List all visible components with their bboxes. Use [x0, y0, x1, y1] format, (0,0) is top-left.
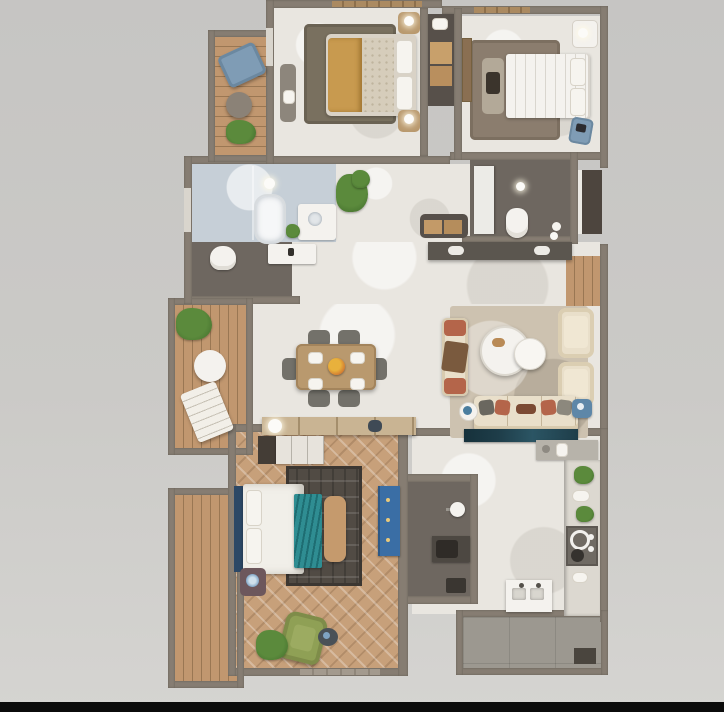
living-hex-table-decor: [577, 403, 584, 410]
dining-chair-bottom-2: [338, 390, 360, 407]
wall-balcony-left-bottom: [168, 448, 253, 455]
window-bedroom1-west: [266, 28, 273, 66]
kitchen-jar: [542, 445, 550, 453]
balcony-tl-plant: [226, 120, 256, 144]
bedroom2-lamp: [578, 28, 588, 38]
bedroom1-bed-duvet: [362, 38, 394, 112]
bedroom2-pillow-top: [570, 58, 586, 86]
wall-bedroom1-east: [420, 8, 428, 156]
bedroom2-wardrobe: [462, 38, 472, 102]
wall-bedroom2-east: [600, 6, 608, 168]
window-master-south: [300, 669, 380, 675]
master-teal-throw: [294, 494, 322, 568]
wall-wc-east: [470, 474, 478, 604]
balcony-left-plant: [176, 308, 212, 340]
bathroom2-shower-panel: [474, 166, 494, 234]
living-sofa-pillow-orange-2: [540, 399, 556, 415]
master-pillow-top: [246, 490, 262, 526]
hall-console-basin-2: [534, 246, 550, 255]
balcony-tl-table: [226, 92, 252, 118]
living-armchair-1-cushion: [564, 316, 588, 348]
living-sofa-lumbar-pillow: [516, 404, 536, 414]
master-wardrobe-white: [276, 436, 324, 464]
living-settee-throw: [441, 340, 469, 373]
bedroom1-pillow-right: [396, 76, 413, 110]
kitchen-sink-basin-1: [512, 588, 526, 600]
kitchen-kettle: [556, 443, 568, 457]
bathroom1-toilet: [210, 246, 236, 270]
bedroom1-closet-box: [432, 18, 448, 30]
wall-kitchen-east: [600, 428, 608, 622]
kitchen-stove-knob-2: [588, 546, 594, 552]
living-side-table-decor: [463, 406, 472, 415]
wall-balcony-tl-bottom: [208, 155, 274, 162]
living-sofa-pillow-gray-2: [556, 399, 573, 416]
master-nightstand-decor: [246, 574, 259, 587]
wall-bedroom1-west: [266, 0, 274, 164]
wall-deck-bl-bottom: [168, 681, 244, 688]
wc-wall-sink: [450, 502, 465, 517]
window-bathroom1-west: [184, 188, 191, 232]
service-balcony-mat: [574, 648, 596, 664]
bedroom2-pillow-bottom: [570, 88, 586, 116]
bedroom2-bench-throw: [486, 72, 500, 94]
bathroom1-bathtub: [254, 194, 286, 244]
balcony-left-table: [194, 350, 226, 382]
wall-balcony-left-top: [168, 298, 253, 305]
bathroom2-ceiling-light: [516, 182, 525, 191]
exterior-shaft: [582, 170, 602, 234]
wall-bedroom2-south: [450, 152, 608, 160]
kitchen-faucet-2: [536, 583, 541, 588]
living-settee-cushion-top: [444, 320, 466, 336]
dining-plate-3: [308, 378, 323, 390]
living-sofa-pillow-orange-1: [494, 399, 510, 415]
dining-chair-bottom-1: [308, 390, 330, 407]
wc-dark-basin: [436, 540, 458, 558]
kitchen-stove-knob-1: [588, 534, 594, 540]
entry-wood-floor: [566, 256, 600, 306]
wc-floor-mat: [446, 578, 466, 593]
bedroom1-lamp-bottom: [404, 114, 414, 124]
living-coffee-table-tray: [492, 338, 505, 347]
kitchen-burner: [570, 530, 590, 550]
hall-plant-leaf: [352, 170, 370, 188]
master-dresser-handle-1: [386, 498, 390, 502]
wall-wc-north: [398, 474, 478, 482]
bedroom1-desk-paper: [283, 90, 295, 104]
letterbox-bottom: [0, 702, 724, 712]
floor-plan-canvas: [0, 0, 724, 712]
kitchen-faucet-1: [519, 583, 524, 588]
master-plant: [256, 630, 288, 660]
bathroom1-ceiling-light: [264, 178, 275, 189]
bathroom2-toilet: [506, 208, 528, 238]
bedroom1-bed-mustard-blanket: [328, 38, 362, 112]
master-pillow-bottom: [246, 528, 262, 564]
wall-service-east: [601, 610, 608, 675]
bathroom1-plant: [286, 224, 300, 238]
wall-living-east: [600, 244, 608, 436]
kitchen-bowl-1: [572, 490, 590, 502]
wall-service-south: [456, 668, 608, 675]
dining-plate-4: [350, 378, 365, 390]
dining-sideboard: [262, 417, 416, 435]
bathroom1-sink: [308, 212, 322, 226]
living-armchair-2-cushion: [564, 369, 588, 397]
bathroom2-decor-vase: [552, 222, 561, 231]
hall-sideboard-drawer-1: [424, 220, 442, 234]
wall-balcony-tl-west: [208, 30, 215, 162]
living-sofa-pillow-gray-1: [478, 399, 495, 416]
master-dresser-handle-3: [386, 538, 390, 542]
kitchen-plant-1: [574, 466, 594, 484]
wall-wc-south: [398, 596, 478, 604]
dining-fruit-bowl: [328, 358, 345, 375]
kitchen-sink-basin-2: [530, 588, 544, 600]
wall-balcony-left-east: [246, 298, 253, 455]
wall-deck-bl-west: [168, 488, 175, 688]
master-bed-headboard: [234, 486, 243, 572]
dining-plate-2: [350, 352, 365, 364]
dining-sideboard-decor: [368, 420, 382, 432]
kitchen-pan: [571, 549, 584, 562]
kitchen-bowl-2: [572, 572, 588, 583]
dining-sideboard-lamp: [268, 419, 282, 433]
window-bedroom2-north: [474, 7, 530, 13]
dining-plate-1: [308, 352, 323, 364]
hall-sideboard-drawer-2: [444, 220, 462, 234]
bedroom1-closet-shelf-2: [430, 66, 452, 86]
living-settee-cushion-bottom: [444, 378, 466, 394]
wall-service-west: [456, 610, 463, 675]
living-coffee-table-small: [514, 338, 546, 370]
master-foot-bench: [324, 496, 346, 562]
bedroom1-lamp-top: [404, 16, 414, 26]
wall-bath2-east: [570, 152, 578, 244]
hall-cat-figurine: [550, 232, 558, 240]
wall-balcony-left-west: [168, 298, 175, 455]
master-wardrobe-dark: [258, 436, 276, 464]
kitchen-plant-2: [576, 506, 594, 522]
bedroom2-armchair-item: [575, 123, 586, 133]
window-bedroom1-north: [332, 1, 422, 7]
master-stool-cup: [323, 632, 330, 639]
wall-balcony-tl-top: [208, 30, 274, 37]
hall-console-basin-1: [448, 246, 464, 255]
wall-bedroom2-west: [454, 8, 462, 160]
bedroom1-closet-shelf-1: [430, 42, 452, 64]
bedroom1-pillow-left: [396, 40, 413, 74]
bathroom1-vanity-faucet: [288, 248, 294, 256]
master-dresser-handle-2: [386, 518, 390, 522]
